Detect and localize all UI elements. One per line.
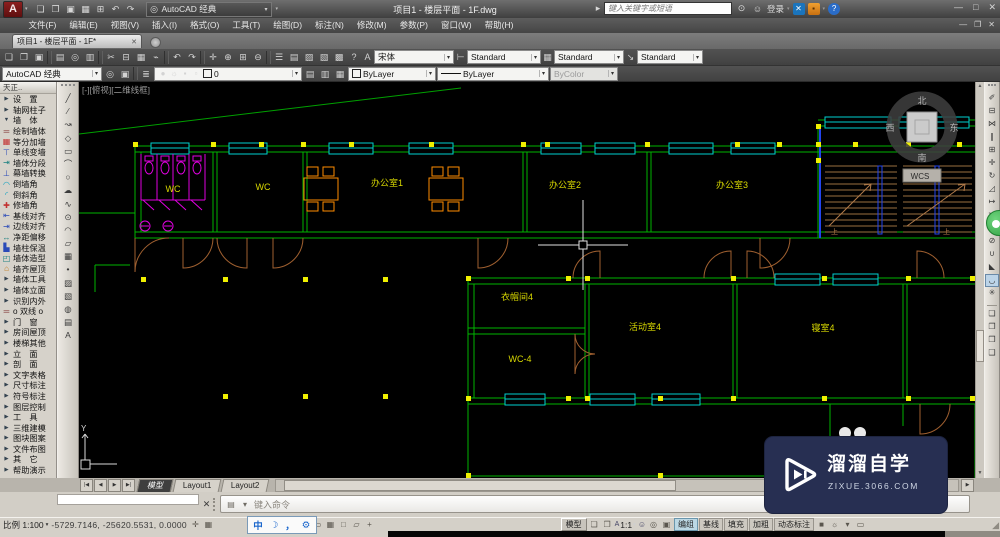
palette-text-table[interactable]: ▶文字表格: [0, 369, 56, 380]
palette-help-demo[interactable]: ▶帮助演示: [0, 465, 56, 476]
glyph-icon: ▶: [1, 107, 12, 113]
label: 倒墙角: [13, 179, 38, 190]
update-lock-icon[interactable]: ▪: [808, 3, 820, 15]
coordinates-readout[interactable]: -5729.7146, -25620.5531, 0.0000: [51, 520, 187, 530]
prev-tab-button[interactable]: ◀: [94, 479, 107, 492]
zoom-window-button[interactable]: ⊞: [236, 50, 250, 64]
horizontal-scroll-thumb[interactable]: [284, 480, 676, 491]
color-combo[interactable]: ByLayer ▾: [348, 67, 436, 81]
annotation-scale-dropdown[interactable]: A 1:1 ▾: [615, 520, 636, 530]
drawing-canvas[interactable]: [-][俯视][二维线框]: [79, 82, 975, 478]
doc-close-button[interactable]: ✕: [988, 20, 995, 29]
glyph-icon: ↔: [1, 233, 12, 242]
workspace-combo[interactable]: ◎ AutoCAD 经典 ▾: [146, 2, 272, 17]
chevron-down-icon[interactable]: ▾: [25, 6, 28, 12]
save-button[interactable]: ▣: [64, 2, 78, 16]
next-tab-button[interactable]: ▶: [108, 479, 121, 492]
workspace-save-button[interactable]: ▣: [118, 67, 132, 81]
ellipse-arc-tool[interactable]: ◠: [58, 224, 78, 237]
glyph-icon: ═: [1, 307, 12, 316]
workspace-icon: ◎: [150, 4, 159, 15]
separator: [98, 51, 103, 64]
layer-plot-toggle[interactable]: ▫: [191, 68, 201, 80]
viewcube[interactable]: 北 南 西 东 WCS: [885, 96, 958, 182]
glyph-icon: ▶: [1, 340, 12, 346]
workspace-buttons: ◎▣: [103, 67, 132, 81]
layer-isolate-button[interactable]: ▦: [333, 67, 347, 81]
palette-line-to-wall[interactable]: ⊤单线变墙: [0, 147, 56, 158]
new-button[interactable]: ❏: [34, 2, 48, 16]
draw-toolbar-icons: ╱∕↝◇▭⌒○☁∿⊙◠▱▦•▨▧◍▤A: [58, 92, 78, 343]
menu-view[interactable]: 视图(V): [104, 18, 145, 33]
menu-modify[interactable]: 修改(M): [350, 18, 393, 33]
menu-file[interactable]: 文件(F): [22, 18, 63, 33]
palette-wall-to-roof[interactable]: ⌂墙齐屋顶: [0, 264, 56, 275]
label: 帮助(H): [485, 20, 514, 30]
label: 楼梯其他: [13, 338, 46, 349]
spline-tool[interactable]: ∿: [58, 198, 78, 211]
help-icon[interactable]: ?: [828, 3, 840, 15]
palette-wall-insulation[interactable]: ▙墙柱保温: [0, 242, 56, 253]
palette-symbol-annotation[interactable]: ▶符号标注: [0, 391, 56, 402]
redo-button[interactable]: ↷: [124, 2, 138, 16]
scale-value: 比例 1:100: [3, 519, 44, 531]
layer-states-button[interactable]: ▤: [303, 67, 317, 81]
markup-button[interactable]: ▩: [332, 50, 346, 64]
bulb-button[interactable]: ☼: [829, 520, 840, 529]
layer-on-toggle[interactable]: ●: [158, 68, 168, 80]
open-button[interactable]: ❐: [17, 50, 31, 64]
scroll-down-icon[interactable]: ▼: [976, 469, 984, 478]
circle-tool[interactable]: ○: [58, 171, 78, 184]
rotate-tool[interactable]: ↻: [985, 170, 999, 183]
polygon-tool[interactable]: ◇: [58, 132, 78, 145]
model-space-button[interactable]: 模型: [561, 518, 587, 531]
palette-fix-wall-corner[interactable]: ✚修墙角: [0, 200, 56, 211]
scale-dropdown[interactable]: 比例 1:100 ▾: [3, 519, 48, 531]
save-button[interactable]: ▣: [32, 50, 46, 64]
palette-clear-offset[interactable]: ↔净距偏移: [0, 232, 56, 243]
vertical-scroll-thumb[interactable]: [976, 330, 984, 362]
infer-button[interactable]: ✛: [190, 520, 201, 529]
new-button[interactable]: ❏: [2, 50, 16, 64]
chevron-down-icon[interactable]: ▾: [787, 6, 790, 12]
palette-recognize-inout[interactable]: ▶识别内外: [0, 295, 56, 306]
glyph-icon: ⊤: [1, 148, 12, 157]
scroll-right-icon[interactable]: ▶: [961, 479, 974, 492]
label: 三维建模: [13, 422, 46, 433]
bottom-strip-taskbar: [388, 531, 945, 537]
mleader-style-icon: ↘: [625, 50, 636, 64]
watermark-url: ZIXUE.3066.COM: [828, 481, 919, 491]
revcloud-tool[interactable]: ☁: [58, 184, 78, 197]
zoom-realtime-button[interactable]: ⊕: [221, 50, 235, 64]
menu-insert[interactable]: 插入(I): [146, 18, 184, 33]
palette-tools[interactable]: ▶工 具: [0, 412, 56, 423]
design-center-button[interactable]: ▤: [287, 50, 301, 64]
person-icon[interactable]: ☺: [638, 520, 646, 529]
exchange-apps-icon[interactable]: ✕: [793, 3, 805, 15]
tab-layout2[interactable]: Layout2: [221, 479, 270, 492]
minimize-button[interactable]: —: [954, 2, 963, 13]
chevron-down-icon[interactable]: ▾: [823, 6, 826, 12]
tz-status-button[interactable]: ■: [816, 520, 827, 529]
text-style-combo[interactable]: 宋体 ▾: [374, 50, 454, 64]
label: 识别内外: [13, 295, 46, 306]
plot-button[interactable]: ⊞: [94, 2, 108, 16]
room-label: 办公室2: [549, 179, 581, 190]
ellipse-tool[interactable]: ⊙: [58, 211, 78, 224]
furniture-group[interactable]: [304, 167, 463, 211]
binoculars-search-icon[interactable]: ⊙: [735, 3, 748, 14]
document-tab[interactable]: 项目1 - 楼层平面 - 1F* ✕: [12, 34, 142, 48]
glyph-icon: ◜: [1, 190, 12, 199]
draw-toolbar: ╱∕↝◇▭⌒○☁∿⊙◠▱▦•▨▧◍▤A: [57, 82, 79, 478]
palette-settings[interactable]: ▶设 置: [0, 94, 56, 105]
glyph-icon: ▶: [1, 456, 12, 462]
tab-close-icon[interactable]: ✕: [131, 38, 137, 46]
explode-tool[interactable]: ✳: [985, 287, 999, 300]
toggle-group[interactable]: 编组: [674, 518, 698, 531]
workspace-settings-button[interactable]: ◎: [103, 67, 117, 81]
palette-layer-control[interactable]: ▶图层控制: [0, 401, 56, 412]
chamfer-tool[interactable]: ◣: [985, 261, 999, 274]
glyph-icon: ▶: [1, 96, 12, 102]
viewcube-south-label[interactable]: 南: [917, 152, 926, 163]
ime-settings-button[interactable]: ⚙: [299, 520, 313, 531]
mtext-tool[interactable]: A: [58, 329, 78, 342]
ime-shape-button[interactable]: ☽: [267, 520, 281, 531]
glyph-icon: ▶: [1, 351, 12, 357]
menu-tools[interactable]: 工具(T): [226, 18, 267, 33]
line-tool[interactable]: ╱: [58, 92, 78, 105]
zoom-previous-button[interactable]: ⊖: [251, 50, 265, 64]
palette-elevation[interactable]: ▶立 面: [0, 348, 56, 359]
annotation-icons: ◎▣: [648, 520, 672, 529]
glyph-icon: ◠: [1, 180, 12, 189]
palette-block-pattern[interactable]: ▶图块图案: [0, 433, 56, 444]
autocad-logo-icon[interactable]: A: [3, 1, 23, 18]
chevron-down-icon: ▾: [265, 6, 268, 13]
palette-wall-tools[interactable]: ▶墙体工具: [0, 274, 56, 285]
undo-button[interactable]: ↶: [170, 50, 184, 64]
toggle-baseline[interactable]: 基线: [699, 518, 723, 531]
table-tool[interactable]: ▤: [58, 316, 78, 329]
xline-tool[interactable]: ∕: [58, 105, 78, 118]
palette-divide-wall[interactable]: ▦等分加墙: [0, 136, 56, 147]
first-tab-button[interactable]: |◀: [80, 479, 93, 492]
viewport-controls[interactable]: [-][俯视][二维线框]: [82, 84, 150, 96]
send-to-back-tool[interactable]: ❐: [985, 321, 999, 334]
cut-button[interactable]: ✂: [104, 50, 118, 64]
command-close-button[interactable]: ✕: [201, 497, 212, 512]
offset-tool[interactable]: ∥: [985, 131, 999, 144]
search-input[interactable]: [604, 2, 732, 15]
pan-button[interactable]: ✛: [206, 50, 220, 64]
clean-screen-button[interactable]: ▭: [855, 520, 866, 529]
snap-button[interactable]: ▦: [203, 520, 214, 529]
label: 边线对齐: [13, 221, 46, 232]
palette-section[interactable]: ▶剖 面: [0, 359, 56, 370]
label: 工具(T): [232, 20, 260, 30]
drawing-window-controls: — ❐ ✕: [959, 20, 995, 29]
mleader-style-value: Standard: [641, 52, 676, 62]
label: 编辑(E): [69, 20, 97, 30]
window-controls: — □ ✕: [954, 2, 996, 13]
properties-button[interactable]: ☰: [272, 50, 286, 64]
tab-model[interactable]: 模型: [137, 479, 174, 492]
move-tool[interactable]: ✛: [985, 157, 999, 170]
last-tab-button[interactable]: ▶|: [122, 479, 135, 492]
chevron-down-icon[interactable]: ▾: [276, 6, 279, 12]
palette-dimension[interactable]: ▶尺寸标注: [0, 380, 56, 391]
person-icon[interactable]: ☺: [751, 4, 764, 14]
menu-edit[interactable]: 编辑(E): [63, 18, 104, 33]
ducs-button[interactable]: □: [338, 520, 349, 529]
label: Layout2: [231, 480, 259, 492]
room-labels-group: WC WC 办公室1 办公室2 办公室3 衣帽间4 WC-4 活动室4 寝室4: [166, 177, 835, 364]
dyn-button[interactable]: ▱: [351, 520, 362, 529]
toolbar-grab-handle[interactable]: [61, 84, 75, 91]
mirror-tool[interactable]: ⋈: [985, 118, 999, 131]
annotation-visibility-button[interactable]: ◎: [648, 520, 659, 529]
glyph-icon: ═: [1, 127, 12, 136]
toggle-fill[interactable]: 填充: [724, 518, 748, 531]
chevron-down-icon: ▾: [46, 522, 49, 528]
otrack-button[interactable]: ▦: [325, 520, 336, 529]
label: 墙体工具: [13, 274, 46, 285]
layer-previous-button[interactable]: ▥: [318, 67, 332, 81]
palette-axis-column[interactable]: ▶轴网柱子: [0, 105, 56, 116]
wcs-label[interactable]: WCS: [911, 172, 930, 181]
menu-bar: 文件(F)编辑(E)视图(V)插入(I)格式(O)工具(T)绘图(D)标注(N)…: [0, 18, 1000, 33]
label: 墙体立面: [13, 285, 46, 296]
palette-wall-fillet[interactable]: ◠倒墙角: [0, 179, 56, 190]
break-tool[interactable]: ⊘: [985, 235, 999, 248]
palette-room-roof[interactable]: ▶房间屋顶: [0, 327, 56, 338]
status-pre-icons: ✛▦: [190, 520, 214, 529]
arc-tool[interactable]: ⌒: [58, 158, 78, 171]
mleader-style-combo[interactable]: Standard ▾: [637, 50, 703, 64]
layer-state-icons: ●☼▪▫: [158, 68, 201, 80]
chevron-down-icon: ▾: [531, 54, 537, 61]
doc-minimize-button[interactable]: —: [959, 20, 967, 29]
grips-group[interactable]: [133, 124, 975, 478]
rectangle-tool[interactable]: ▭: [58, 145, 78, 158]
viewcube-west-label[interactable]: 西: [885, 123, 894, 133]
label: 修改(M): [357, 20, 387, 30]
glyph-icon: ⇥: [1, 158, 12, 167]
menu-format[interactable]: 格式(O): [184, 18, 226, 33]
palette-others[interactable]: ▶其 它: [0, 454, 56, 465]
preview-button[interactable]: ◎: [68, 50, 82, 64]
stair-up-label: 上: [943, 227, 950, 236]
menu-window[interactable]: 窗口(W): [434, 18, 478, 33]
layer-color-swatch: [203, 69, 212, 78]
vertical-scrollbar[interactable]: ▲ ▼: [975, 82, 984, 478]
viewcube-north-label[interactable]: 北: [917, 96, 926, 106]
quick-view-layouts-button[interactable]: ❏: [589, 520, 600, 529]
command-drag-handle[interactable]: [213, 498, 219, 511]
glyph-icon: ▶: [1, 361, 12, 367]
sheet-set-button[interactable]: ▧: [317, 50, 331, 64]
label: 剖 面: [13, 359, 38, 370]
palette-file-layout[interactable]: ▶文件布图: [0, 444, 56, 455]
label: 文件(F): [29, 20, 57, 30]
room-label: 衣帽间4: [501, 291, 533, 302]
glyph-icon: ▶: [1, 329, 12, 335]
label: 格式(O): [190, 20, 219, 30]
point-tool[interactable]: •: [58, 263, 78, 276]
resize-grip[interactable]: ◢: [992, 520, 999, 531]
redo-button[interactable]: ↷: [185, 50, 199, 64]
dim-style-combo[interactable]: Standard ▾: [467, 50, 541, 64]
tab-layout1[interactable]: Layout1: [173, 479, 222, 492]
array-tool[interactable]: ⊞: [985, 144, 999, 157]
copy-tool[interactable]: ⊟: [985, 105, 999, 118]
open-button[interactable]: ❐: [49, 2, 63, 16]
palette-wall-elevation[interactable]: ▶墙体立面: [0, 285, 56, 296]
palette-stairs-other[interactable]: ▶楼梯其他: [0, 338, 56, 349]
dim-style-icon: ⊢: [455, 50, 466, 64]
palette-draw-wall[interactable]: ═绘制墙体: [0, 126, 56, 137]
autoscale-button[interactable]: ▣: [661, 520, 672, 529]
label: 基线: [703, 520, 719, 529]
layer-lock-toggle[interactable]: ▪: [180, 68, 190, 80]
glyph-icon: ▶: [1, 393, 12, 399]
menu-draw[interactable]: 绘图(D): [267, 18, 309, 33]
label: 符号标注: [13, 391, 46, 402]
saveas-button[interactable]: ▦: [79, 2, 93, 16]
erase-tool[interactable]: ✐: [985, 92, 999, 105]
label: 单线变墙: [13, 147, 46, 158]
watermark-title: 溜溜自学: [827, 449, 911, 476]
chevron-down-icon: ▾: [608, 70, 614, 77]
publish-button[interactable]: ▥: [83, 50, 97, 64]
label: 绘制墙体: [13, 126, 46, 137]
bring-to-front-tool[interactable]: ❏: [985, 308, 999, 321]
lwt-button[interactable]: +: [364, 520, 375, 529]
copy-button[interactable]: ⊟: [119, 50, 133, 64]
menu-parametric[interactable]: 参数(P): [393, 18, 434, 33]
status-menu-button[interactable]: ▾: [842, 520, 853, 529]
send-under-tool[interactable]: ❑: [985, 347, 999, 360]
status-bar: 比例 1:100 ▾ -5729.7146, -25620.5531, 0.00…: [0, 517, 1000, 531]
label: 门 窗: [13, 316, 38, 327]
toolbar-grab-handle[interactable]: [988, 84, 996, 91]
quick-view-drawings-button[interactable]: ❐: [602, 520, 613, 529]
palette-door-window[interactable]: ▶门 窗: [0, 316, 56, 327]
scrollbar-corner: [975, 479, 1000, 491]
menu-dimension[interactable]: 标注(N): [309, 18, 351, 33]
region-tool[interactable]: ◍: [58, 303, 78, 316]
search-arrow-icon[interactable]: ▸: [595, 3, 601, 14]
palette-3d-modeling[interactable]: ▶三维建模: [0, 422, 56, 433]
scale-tool[interactable]: ◿: [985, 183, 999, 196]
window-title: 项目1 - 楼层平面 - 1F.dwg: [310, 3, 580, 16]
scroll-up-icon[interactable]: ▲: [976, 82, 984, 91]
glyph-icon: ▶: [1, 425, 12, 431]
quick-access-toolbar: ❏❐▣▦⊞↶↷: [34, 2, 138, 16]
stretch-tool[interactable]: ↦: [985, 196, 999, 209]
join-tool[interactable]: ∪: [985, 248, 999, 261]
quick-view-icons: ❏❐: [589, 520, 613, 529]
separator: [164, 51, 169, 64]
new-tab-button[interactable]: [150, 37, 161, 48]
toggle-bold[interactable]: 加粗: [749, 518, 773, 531]
polyline-tool[interactable]: ↝: [58, 118, 78, 131]
paste-button[interactable]: ▦: [134, 50, 148, 64]
tool-palettes-button[interactable]: ▨: [302, 50, 316, 64]
fillet-tool[interactable]: ◡: [985, 274, 999, 287]
recent-commands-button[interactable]: ▾: [239, 500, 251, 509]
text-style-icon: A: [362, 50, 373, 64]
palette-wall-group[interactable]: ▼墙 体: [0, 115, 56, 126]
info-center: ▸ ⊙ ☺ 登录 ▾ ✕ ▪ ▾ ?: [595, 2, 840, 15]
bottom-strip-right: [945, 531, 1000, 537]
insert-block-tool[interactable]: ▱: [58, 237, 78, 250]
palette-baseline-align[interactable]: ⇤基线对齐: [0, 211, 56, 222]
modify-toolbar: ✐⊟⋈∥⊞✛↻◿↦✂↠⊘∪◣◡✳❏❐❒❑: [984, 82, 1000, 478]
palette-double-line-toggle[interactable]: ═o 双线 o: [0, 306, 56, 317]
chevron-down-icon: ▾: [426, 70, 432, 77]
hatch-tool[interactable]: ▨: [58, 277, 78, 290]
color-swatch: [352, 69, 361, 78]
layer-freeze-toggle[interactable]: ☼: [169, 68, 179, 80]
match-properties-button[interactable]: ⌁: [149, 50, 163, 64]
plot-style-combo[interactable]: ByColor ▾: [550, 67, 618, 81]
toggle-dynamic-dim[interactable]: 动态标注: [774, 518, 814, 531]
doc-restore-button[interactable]: ❐: [974, 20, 981, 29]
close-button[interactable]: ✕: [988, 2, 996, 13]
glyph-icon: ▙: [1, 243, 12, 252]
palette-curtain-wall[interactable]: ⊥幕墙转换: [0, 168, 56, 179]
layer-properties-button[interactable]: ≣: [139, 67, 153, 81]
label: 尺寸标注: [13, 380, 46, 391]
palette-edge-align[interactable]: ⇥边线对齐: [0, 221, 56, 232]
gradient-tool[interactable]: ▧: [58, 290, 78, 303]
standard-toolbar: ❏❐▣▤◎▥✂⊟▦⌁↶↷✛⊕⊞⊖☰▤▨▧▩? A 宋体 ▾ ⊢ Standard…: [0, 49, 1000, 66]
table-style-combo[interactable]: Standard ▾: [554, 50, 624, 64]
ime-punct-button[interactable]: ，: [283, 518, 297, 532]
palette-wall-modeling[interactable]: ◰墙体造型: [0, 253, 56, 264]
undo-button[interactable]: ↶: [109, 2, 123, 16]
file-tab-bar: 项目1 - 楼层平面 - 1F* ✕: [0, 33, 1000, 49]
make-block-tool[interactable]: ▦: [58, 250, 78, 263]
autocad-window: A ▾ ❏❐▣▦⊞↶↷ ◎ AutoCAD 经典 ▾ ▾ 项目1 - 楼层平面 …: [0, 0, 1000, 537]
windows-group[interactable]: [151, 117, 969, 405]
layer-name-value: 0: [214, 69, 219, 79]
customize-command-button[interactable]: ▤: [225, 500, 237, 509]
sign-in-link[interactable]: 登录: [767, 3, 784, 15]
palette-wall-segment[interactable]: ⇥墙体分段: [0, 158, 56, 169]
plot-button[interactable]: ▤: [53, 50, 67, 64]
menu-help[interactable]: 帮助(H): [478, 18, 520, 33]
annotation-a-icon: A: [615, 521, 620, 528]
glyph-icon: ⇤: [1, 211, 12, 220]
layer-combo[interactable]: ●☼▪▫ 0 ▾: [154, 67, 302, 81]
ime-language-button[interactable]: 中: [251, 518, 265, 532]
linetype-combo[interactable]: ByLayer ▾: [437, 67, 549, 81]
help-button[interactable]: ?: [347, 50, 361, 64]
workspaces-combo[interactable]: AutoCAD 经典 ▾: [2, 67, 102, 81]
palette-title[interactable]: 天正..: [0, 82, 56, 94]
bottom-strip-left: [0, 531, 388, 537]
bring-above-tool[interactable]: ❒: [985, 334, 999, 347]
palette-wall-chamfer[interactable]: ◜倒斜角: [0, 189, 56, 200]
viewcube-east-label[interactable]: 东: [949, 122, 958, 133]
maximize-button[interactable]: □: [973, 2, 978, 13]
